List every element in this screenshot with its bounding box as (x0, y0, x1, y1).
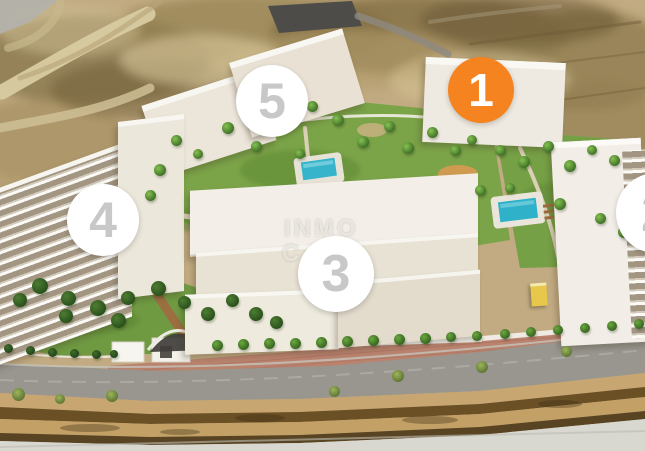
palm-tree (564, 160, 576, 172)
palm-tree (357, 136, 369, 148)
garden-tree (61, 291, 76, 306)
street-tree (316, 337, 327, 348)
garden-tree (90, 300, 106, 316)
palm-tree (450, 145, 461, 156)
slope-shrub (476, 361, 488, 373)
garden-tree (59, 309, 73, 323)
street-tree (212, 340, 223, 351)
slope-shrub (329, 386, 340, 397)
fence-bush (110, 350, 118, 358)
street-tree (290, 338, 301, 349)
palm-tree (332, 114, 344, 126)
street-tree (446, 332, 456, 342)
street-tree (607, 321, 617, 331)
garden-tree (13, 293, 27, 307)
palm-tree (495, 145, 506, 156)
palm-tree (467, 135, 477, 145)
fence-bush (70, 349, 79, 358)
fence-bush (26, 346, 35, 355)
garden-tree (249, 307, 263, 321)
palm-tree (518, 156, 530, 168)
garden-tree (201, 307, 215, 321)
palm-tree (505, 183, 515, 193)
utility-hut (530, 282, 548, 306)
slope-shrub (12, 388, 25, 401)
palm-tree (171, 135, 182, 146)
garden-tree (121, 291, 135, 305)
palm-tree (222, 122, 234, 134)
street-tree (420, 333, 431, 344)
palm-tree (543, 141, 554, 152)
palm-tree (384, 121, 395, 132)
street-tree (264, 338, 275, 349)
street-tree (553, 325, 563, 335)
garden-tree (270, 316, 283, 329)
block-1-badge[interactable]: 1 (448, 57, 514, 123)
fence-bush (4, 344, 13, 353)
palm-tree (554, 198, 566, 210)
garden-tree (32, 278, 48, 294)
garden-tree (111, 313, 126, 328)
slope-shrub (561, 346, 572, 357)
palm-tree (295, 149, 305, 159)
palm-tree (427, 127, 438, 138)
block-4-badge[interactable]: 4 (67, 184, 139, 256)
palm-tree (154, 164, 166, 176)
street-tree (526, 327, 536, 337)
street-tree (394, 334, 405, 345)
slope-shrub (55, 394, 65, 404)
street-tree (342, 336, 353, 347)
garden-tree (226, 294, 239, 307)
fence-bush (92, 350, 101, 359)
garden-tree (151, 281, 166, 296)
palm-tree (402, 142, 414, 154)
palm-tree (595, 213, 606, 224)
palm-tree (475, 185, 486, 196)
slope-shrub (106, 390, 118, 402)
garden-tree (178, 296, 191, 309)
street-tree (472, 331, 482, 341)
palm-tree (251, 141, 262, 152)
block-5-badge[interactable]: 5 (236, 65, 308, 137)
street-tree (238, 339, 249, 350)
palm-tree (193, 149, 203, 159)
street-tree (580, 323, 590, 333)
fence-bush (48, 348, 57, 357)
palm-tree (609, 155, 620, 166)
street-tree (368, 335, 379, 346)
palm-tree (587, 145, 597, 155)
palm-tree (145, 190, 156, 201)
street-tree (500, 329, 510, 339)
block-3-badge[interactable]: 3 (298, 236, 374, 312)
aerial-development-render: INMO C 1 2 3 4 5 (0, 0, 645, 451)
palm-tree (307, 101, 318, 112)
street-tree (634, 319, 644, 329)
slope-shrub (392, 370, 404, 382)
